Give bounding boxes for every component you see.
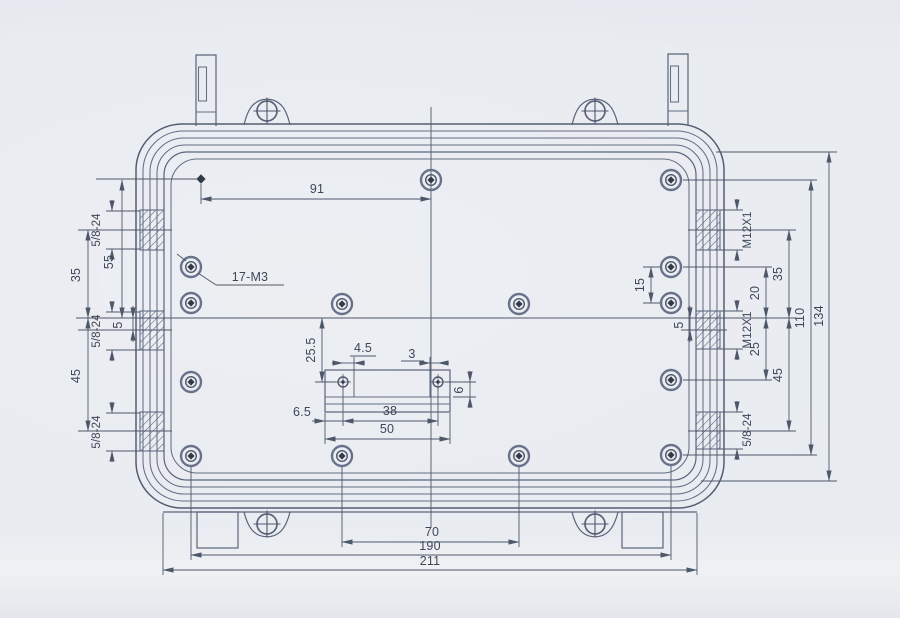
dim-label-45-right: 45 — [771, 368, 785, 382]
dim-label-211: 211 — [420, 554, 441, 568]
datum-point-diamond — [196, 174, 205, 184]
dim-label-5-left: 5 — [111, 321, 125, 328]
dim-label-3: 3 — [408, 347, 415, 361]
dim-label-55: 55 — [102, 255, 116, 269]
dim-label-110: 110 — [793, 308, 807, 329]
dim-label-20: 20 — [748, 286, 762, 300]
screw-hole-m3 — [509, 446, 529, 466]
leader-label-17-m3: 17-M3 — [232, 270, 268, 284]
bottom-tab-right — [622, 512, 663, 548]
thread-label-right-bot: 5/8-24 — [742, 413, 754, 447]
enclosure-outline — [136, 54, 724, 548]
dim-label-25: 25 — [748, 342, 762, 356]
screw-hole-m3 — [661, 293, 681, 313]
dim-label-91: 91 — [310, 182, 324, 196]
screw-hole-m3 — [181, 446, 201, 466]
lug-screw-hole — [582, 511, 609, 538]
thread-boss-right-bot — [696, 412, 720, 449]
dim-label-6-5: 6.5 — [293, 405, 311, 419]
screw-hole-m3 — [332, 446, 352, 466]
boss-hole-left — [335, 374, 351, 390]
drawing-sheet: 91 55 35 5 45 5/8-24 5/8-24 5/8-24 17-M3… — [0, 0, 900, 618]
dim-label-134: 134 — [812, 305, 826, 326]
screw-hole-m3 — [661, 170, 681, 190]
thread-label-left-bot: 5/8-24 — [91, 415, 103, 449]
dim-label-45-left: 45 — [69, 369, 83, 383]
screw-hole-m3 — [661, 370, 681, 390]
bottom-tab-left — [197, 512, 238, 548]
dim-label-35-left: 35 — [69, 268, 83, 282]
dim-label-38: 38 — [383, 404, 397, 418]
dim-label-4-5: 4.5 — [354, 341, 372, 355]
top-hanger-tab-left — [196, 55, 216, 126]
dim-label-35-right: 35 — [771, 267, 785, 281]
thread-label-left-top: 5/8-24 — [91, 213, 103, 247]
lug-screw-hole — [254, 511, 281, 538]
dim-label-5-right: 5 — [672, 321, 686, 328]
screw-hole-m3 — [661, 257, 681, 277]
thread-label-right-top: M12X1 — [742, 212, 754, 249]
top-hanger-tab-right — [668, 54, 688, 126]
screw-hole-m3 — [332, 294, 352, 314]
screw-hole-m3 — [509, 294, 529, 314]
thread-label-left-mid: 5/8-24 — [91, 314, 103, 348]
technical-drawing: 91 55 35 5 45 5/8-24 5/8-24 5/8-24 17-M3… — [0, 0, 900, 618]
screw-hole-m3 — [661, 445, 681, 465]
thread-boss-left-mid — [140, 311, 164, 350]
dim-label-70: 70 — [425, 525, 439, 539]
screw-hole-m3 — [181, 293, 201, 313]
dim-label-25-5: 25.5 — [304, 337, 318, 362]
screw-hole-m3 — [181, 372, 201, 392]
dim-label-50: 50 — [380, 422, 394, 436]
dim-label-190: 190 — [419, 539, 440, 553]
dim-label-6: 6 — [452, 386, 466, 393]
dim-label-15: 15 — [633, 278, 647, 292]
boss-hole-right — [430, 374, 446, 390]
thread-boss-hatches — [140, 210, 720, 451]
thread-boss-left-bot — [140, 412, 164, 451]
